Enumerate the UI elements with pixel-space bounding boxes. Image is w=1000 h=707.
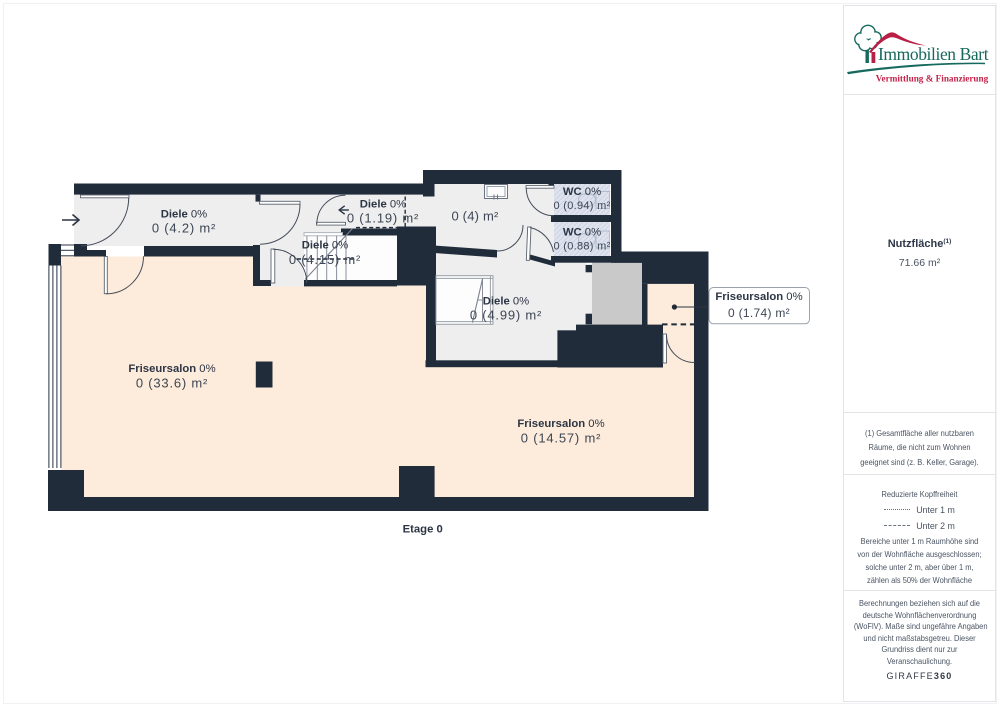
svg-text:Friseursalon 0%: Friseursalon 0% <box>517 418 604 430</box>
svg-text:Friseursalon 0%: Friseursalon 0% <box>715 291 802 303</box>
svg-text:0 (14.57) m²: 0 (14.57) m² <box>521 430 601 445</box>
svg-text:Diele 0%: Diele 0% <box>360 199 406 211</box>
svg-text:0 (4.2) m²: 0 (4.2) m² <box>152 221 216 236</box>
svg-text:WC 0%: WC 0% <box>563 186 601 198</box>
svg-text:Diele 0%: Diele 0% <box>161 209 207 221</box>
svg-text:WC 0%: WC 0% <box>563 227 601 239</box>
svg-text:0 (0.94) m²: 0 (0.94) m² <box>553 200 610 212</box>
svg-text:0 (4.99) m²: 0 (4.99) m² <box>470 308 542 323</box>
svg-text:0 (0.88) m²: 0 (0.88) m² <box>553 241 610 253</box>
svg-text:Diele 0%: Diele 0% <box>302 239 348 251</box>
svg-text:Diele 0%: Diele 0% <box>483 296 529 308</box>
svg-text:0 (4) m²: 0 (4) m² <box>451 209 499 224</box>
svg-text:Etage 0: Etage 0 <box>403 524 443 536</box>
svg-text:0 (4.15) m²: 0 (4.15) m² <box>289 252 361 267</box>
svg-text:0 (1.19) m²: 0 (1.19) m² <box>347 211 419 226</box>
svg-text:0 (33.6) m²: 0 (33.6) m² <box>136 376 208 391</box>
svg-text:0 (1.74) m²: 0 (1.74) m² <box>728 306 790 320</box>
svg-text:Friseursalon 0%: Friseursalon 0% <box>128 363 215 375</box>
